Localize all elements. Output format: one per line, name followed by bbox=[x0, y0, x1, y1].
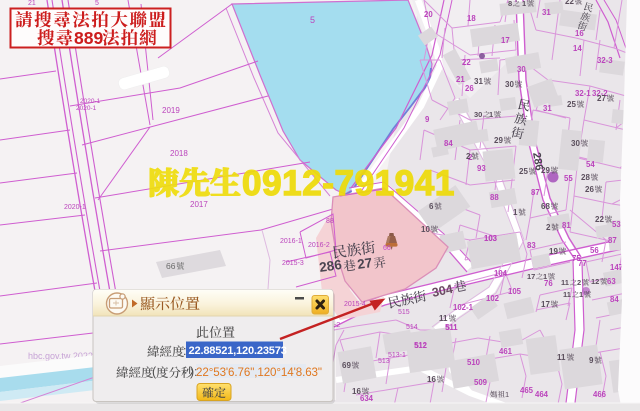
svg-text:68: 68 bbox=[541, 202, 550, 211]
svg-text:66: 66 bbox=[383, 245, 391, 252]
svg-text:88: 88 bbox=[326, 218, 334, 225]
svg-text:2020-1: 2020-1 bbox=[64, 204, 86, 211]
svg-text:2: 2 bbox=[577, 278, 581, 287]
svg-text:30: 30 bbox=[517, 65, 526, 74]
svg-text:77: 77 bbox=[578, 259, 587, 268]
svg-text:461: 461 bbox=[499, 347, 513, 356]
svg-text:147: 147 bbox=[610, 263, 623, 272]
svg-text:63: 63 bbox=[607, 277, 616, 286]
svg-text:25: 25 bbox=[567, 100, 576, 109]
svg-text:105: 105 bbox=[508, 287, 522, 296]
svg-text:102: 102 bbox=[486, 294, 500, 303]
svg-text:2: 2 bbox=[546, 223, 551, 232]
svg-text:509: 509 bbox=[474, 378, 488, 387]
svg-text:5: 5 bbox=[310, 15, 315, 25]
svg-text:102-1: 102-1 bbox=[453, 303, 474, 312]
svg-text:81: 81 bbox=[562, 221, 571, 230]
svg-text:1: 1 bbox=[505, 390, 509, 399]
svg-text:2020-1: 2020-1 bbox=[76, 105, 97, 112]
svg-text:27: 27 bbox=[356, 255, 373, 272]
svg-text:21: 21 bbox=[456, 75, 465, 84]
svg-text:286: 286 bbox=[318, 257, 343, 275]
svg-text:84: 84 bbox=[444, 139, 453, 148]
svg-text:2016-2: 2016-2 bbox=[308, 242, 330, 249]
svg-text:16: 16 bbox=[575, 29, 584, 38]
svg-text:1: 1 bbox=[522, 0, 526, 8]
svg-text:513: 513 bbox=[378, 358, 390, 365]
svg-text:1: 1 bbox=[543, 272, 547, 281]
svg-text:2015-3: 2015-3 bbox=[282, 260, 304, 267]
svg-text:22: 22 bbox=[595, 215, 604, 224]
svg-text:17: 17 bbox=[501, 36, 510, 45]
svg-text:103: 103 bbox=[484, 234, 498, 243]
svg-text:54: 54 bbox=[586, 160, 595, 169]
svg-text:1: 1 bbox=[489, 110, 493, 119]
svg-text:2017: 2017 bbox=[190, 200, 208, 209]
svg-text:55: 55 bbox=[564, 174, 573, 183]
svg-text:9: 9 bbox=[425, 115, 430, 124]
svg-text:514: 514 bbox=[406, 324, 418, 331]
svg-text:17: 17 bbox=[541, 300, 550, 309]
svg-text:21: 21 bbox=[28, 0, 36, 7]
svg-text:9: 9 bbox=[589, 356, 594, 365]
svg-text:2020-1: 2020-1 bbox=[80, 98, 101, 105]
svg-text:31: 31 bbox=[542, 8, 551, 17]
svg-text:19: 19 bbox=[549, 247, 558, 256]
svg-text:28: 28 bbox=[581, 173, 590, 182]
svg-text:30: 30 bbox=[474, 110, 482, 119]
svg-text:2019: 2019 bbox=[162, 106, 180, 115]
svg-text:83: 83 bbox=[527, 241, 536, 250]
svg-text:515: 515 bbox=[398, 309, 410, 316]
svg-text:87: 87 bbox=[531, 188, 540, 197]
svg-text:27: 27 bbox=[597, 94, 606, 103]
svg-text:513-1: 513-1 bbox=[388, 352, 406, 359]
svg-text:104: 104 bbox=[494, 269, 508, 278]
svg-text:84: 84 bbox=[610, 295, 619, 304]
svg-text:16: 16 bbox=[352, 387, 361, 396]
svg-text:634: 634 bbox=[360, 394, 374, 403]
svg-text:0912-791941: 0912-791941 bbox=[242, 164, 455, 203]
svg-text:464: 464 bbox=[535, 390, 549, 399]
svg-text:18: 18 bbox=[467, 14, 476, 23]
svg-text:93: 93 bbox=[477, 164, 486, 173]
svg-text:11: 11 bbox=[563, 290, 571, 299]
svg-text:31: 31 bbox=[543, 104, 552, 113]
svg-text:2018: 2018 bbox=[170, 149, 188, 158]
svg-text::: : bbox=[183, 344, 186, 358]
svg-text:31: 31 bbox=[474, 77, 483, 86]
svg-text:2016-1: 2016-1 bbox=[280, 238, 302, 245]
svg-text:32-3: 32-3 bbox=[597, 56, 613, 65]
svg-text:12: 12 bbox=[591, 277, 599, 286]
svg-text:889: 889 bbox=[74, 28, 103, 48]
svg-text:56: 56 bbox=[590, 246, 599, 255]
svg-text:2: 2 bbox=[466, 152, 471, 161]
svg-text:11: 11 bbox=[439, 314, 448, 323]
svg-text:87: 87 bbox=[608, 236, 617, 245]
svg-text:512: 512 bbox=[414, 341, 428, 350]
svg-text:11: 11 bbox=[557, 353, 566, 362]
svg-text:30: 30 bbox=[505, 80, 514, 89]
svg-text:22°53'6.76",120°14'8.63": 22°53'6.76",120°14'8.63" bbox=[196, 366, 322, 379]
svg-text:1: 1 bbox=[579, 290, 583, 299]
svg-text:32-1: 32-1 bbox=[575, 89, 591, 98]
svg-text:10: 10 bbox=[421, 225, 430, 234]
svg-text:22: 22 bbox=[565, 0, 574, 6]
svg-text:69: 69 bbox=[342, 361, 351, 370]
svg-text:6: 6 bbox=[429, 202, 434, 211]
svg-text:25: 25 bbox=[519, 167, 528, 176]
svg-text:14: 14 bbox=[573, 44, 582, 53]
svg-text:30: 30 bbox=[571, 139, 580, 148]
svg-text:22.88521,120.23573: 22.88521,120.23573 bbox=[189, 345, 287, 357]
svg-text:22: 22 bbox=[462, 58, 471, 67]
svg-text:53: 53 bbox=[612, 220, 621, 229]
svg-text:29: 29 bbox=[494, 136, 503, 145]
svg-text:8: 8 bbox=[508, 0, 512, 8]
svg-text:5: 5 bbox=[95, 0, 99, 7]
svg-text:465: 465 bbox=[520, 386, 534, 395]
svg-text:16: 16 bbox=[427, 375, 436, 384]
svg-text:29: 29 bbox=[541, 166, 550, 175]
svg-text:26: 26 bbox=[585, 185, 594, 194]
svg-text:26: 26 bbox=[465, 84, 474, 93]
svg-text:466: 466 bbox=[593, 390, 607, 399]
svg-text:1: 1 bbox=[513, 208, 518, 217]
svg-text:88: 88 bbox=[490, 193, 499, 202]
svg-text:20: 20 bbox=[424, 10, 433, 19]
svg-text:17: 17 bbox=[527, 272, 535, 281]
svg-text:11: 11 bbox=[561, 278, 569, 287]
svg-text:511: 511 bbox=[445, 323, 458, 332]
svg-text:510: 510 bbox=[467, 358, 481, 367]
svg-text:66: 66 bbox=[166, 261, 176, 271]
